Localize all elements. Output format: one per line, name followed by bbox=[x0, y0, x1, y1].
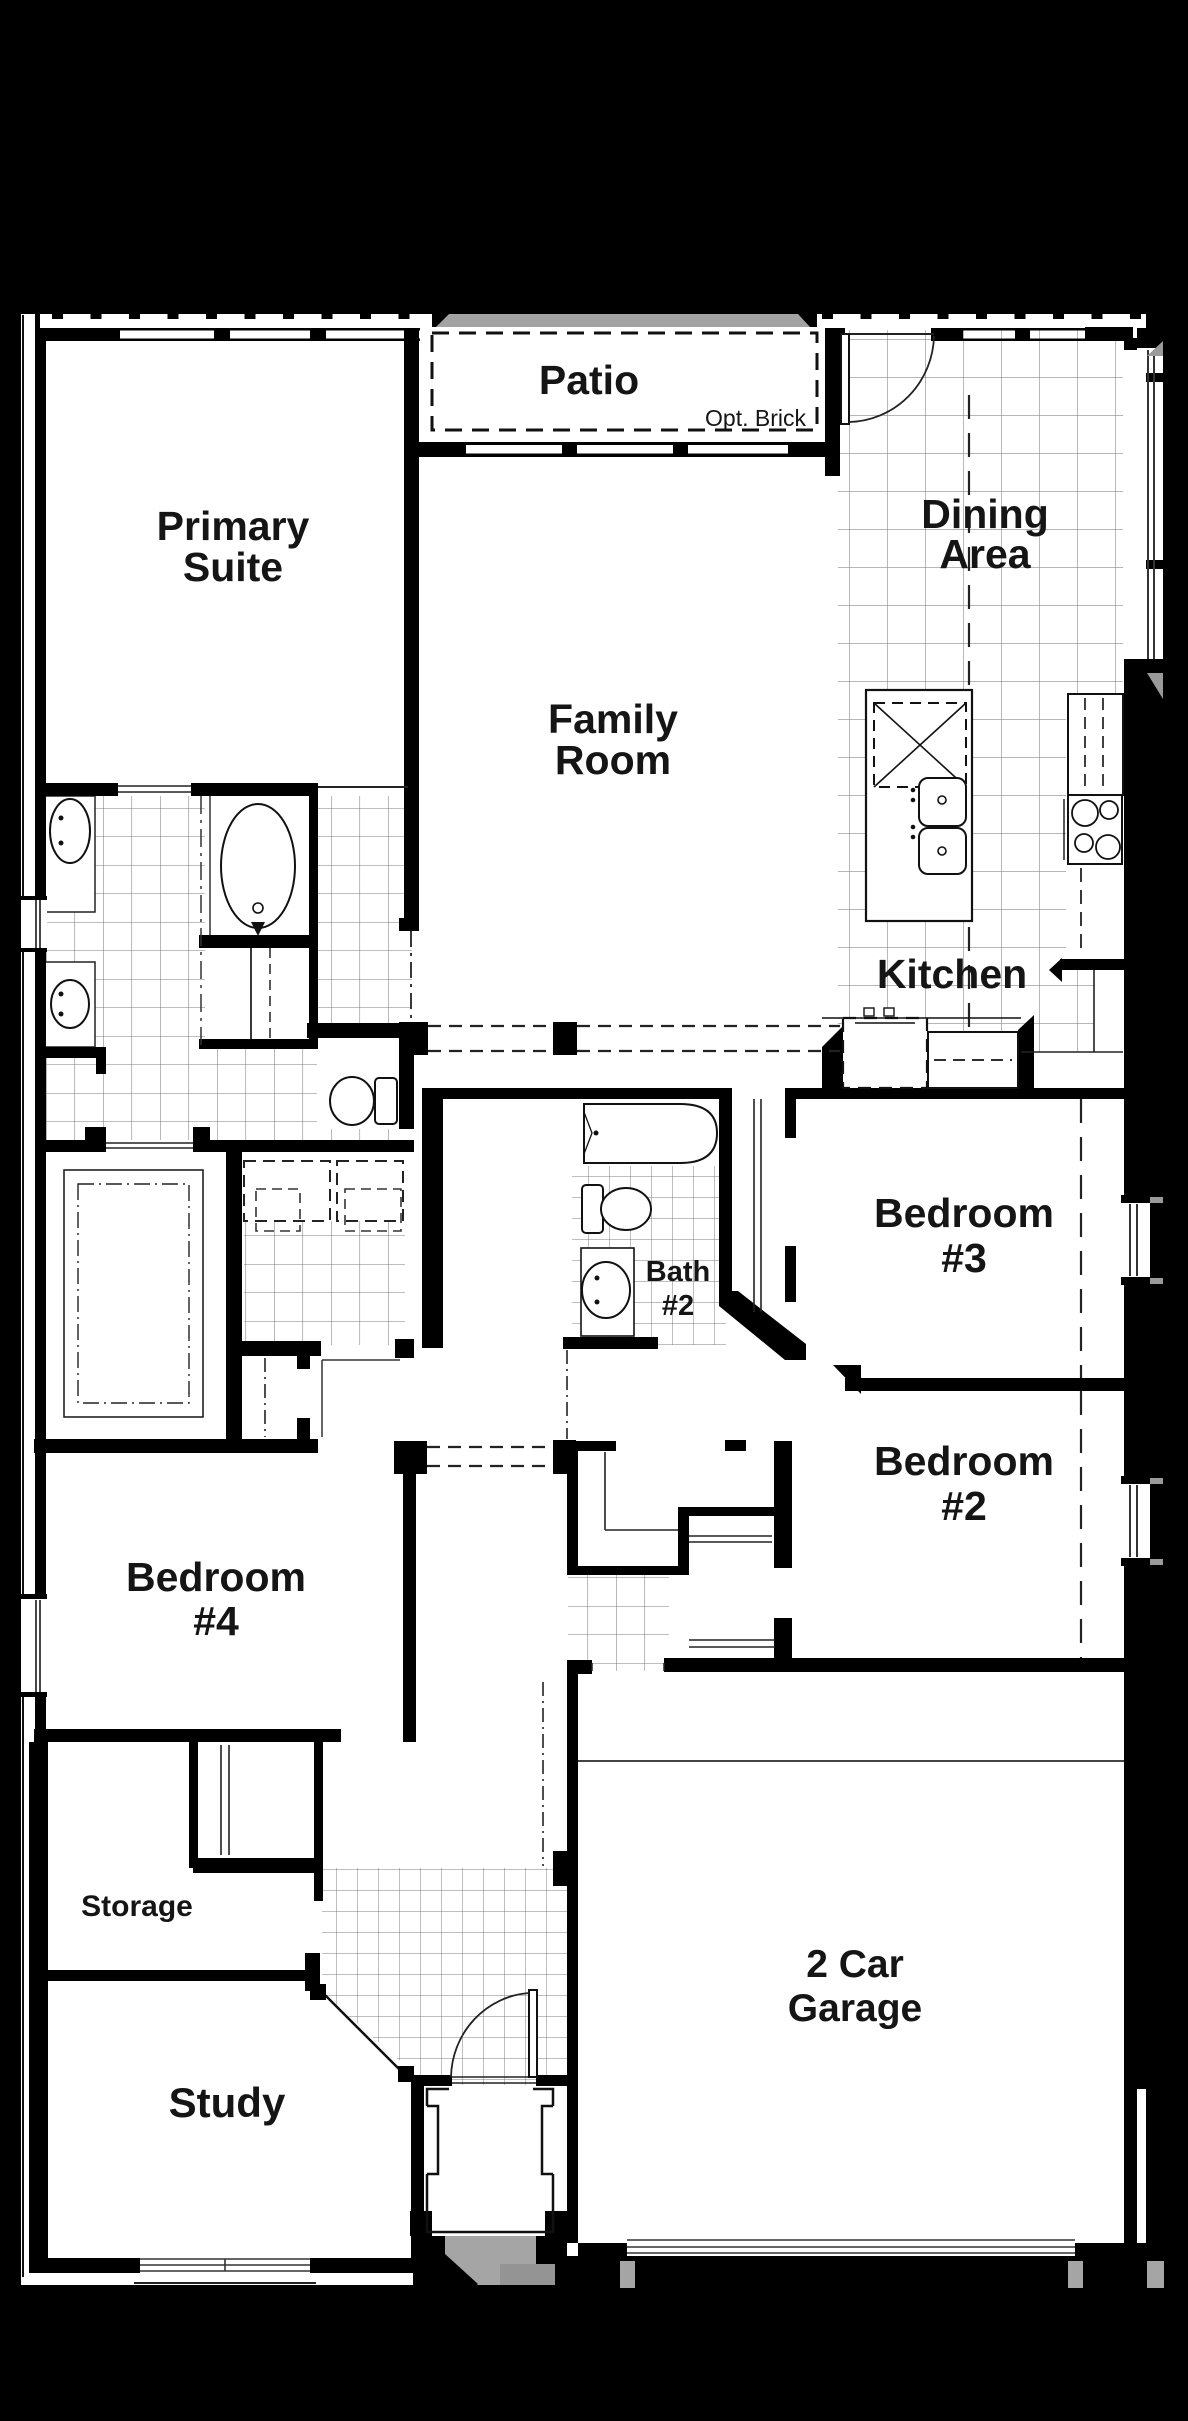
svg-text:Room: Room bbox=[555, 737, 671, 783]
svg-text:#4: #4 bbox=[193, 1598, 239, 1644]
svg-text:Storage: Storage bbox=[81, 1890, 193, 1923]
svg-text:#3: #3 bbox=[941, 1235, 987, 1281]
svg-text:Suite: Suite bbox=[183, 544, 283, 590]
svg-text:Opt. Brick: Opt. Brick bbox=[705, 405, 806, 431]
svg-text:#2: #2 bbox=[662, 1290, 694, 1322]
svg-text:Bedroom: Bedroom bbox=[874, 1438, 1054, 1484]
svg-text:Bedroom: Bedroom bbox=[874, 1190, 1054, 1236]
svg-text:Area: Area bbox=[939, 531, 1031, 577]
svg-text:Family: Family bbox=[548, 696, 678, 742]
svg-text:Primary: Primary bbox=[157, 503, 310, 549]
svg-text:Kitchen: Kitchen bbox=[877, 951, 1027, 997]
svg-text:Bath: Bath bbox=[646, 1256, 710, 1288]
svg-text:Patio: Patio bbox=[539, 357, 639, 403]
svg-text:Garage: Garage bbox=[788, 1987, 922, 2030]
svg-text:#2: #2 bbox=[941, 1483, 987, 1529]
svg-text:Bedroom: Bedroom bbox=[126, 1554, 306, 1600]
svg-text:2 Car: 2 Car bbox=[806, 1943, 904, 1986]
svg-text:Study: Study bbox=[169, 2079, 286, 2126]
